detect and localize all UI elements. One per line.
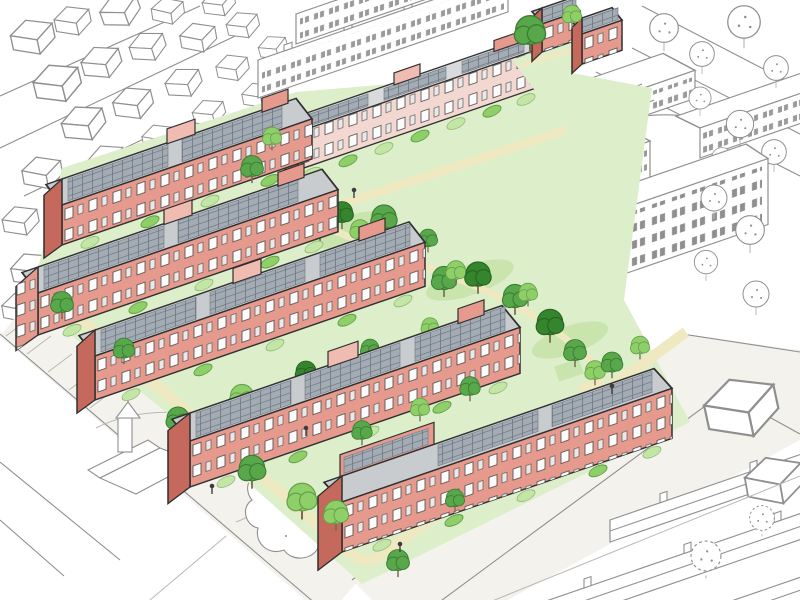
architectural-illustration: Housing development masterplan — hand-dr…	[0, 0, 800, 600]
illustration-canvas: Housing development masterplan — hand-dr…	[0, 0, 800, 600]
